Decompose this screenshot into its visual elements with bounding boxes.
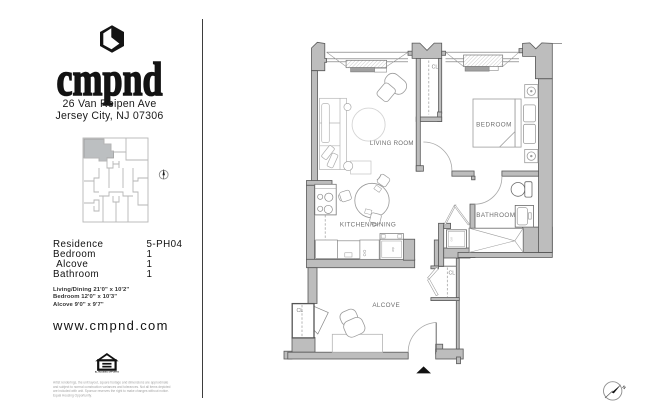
- svg-text:BEDROOM: BEDROOM: [476, 122, 512, 129]
- svg-text:KITCHEN/DINING: KITCHEN/DINING: [340, 222, 396, 229]
- svg-text:BATHROOM: BATHROOM: [476, 212, 515, 219]
- svg-text:CL: CL: [448, 271, 455, 277]
- svg-text:LIVING ROOM: LIVING ROOM: [370, 140, 414, 147]
- svg-text:WD: WD: [450, 237, 454, 241]
- svg-text:ALCOVE: ALCOVE: [372, 302, 400, 309]
- svg-text:CL: CL: [432, 65, 439, 71]
- svg-text:dw: dw: [391, 247, 395, 252]
- svg-text:CL: CL: [296, 308, 303, 314]
